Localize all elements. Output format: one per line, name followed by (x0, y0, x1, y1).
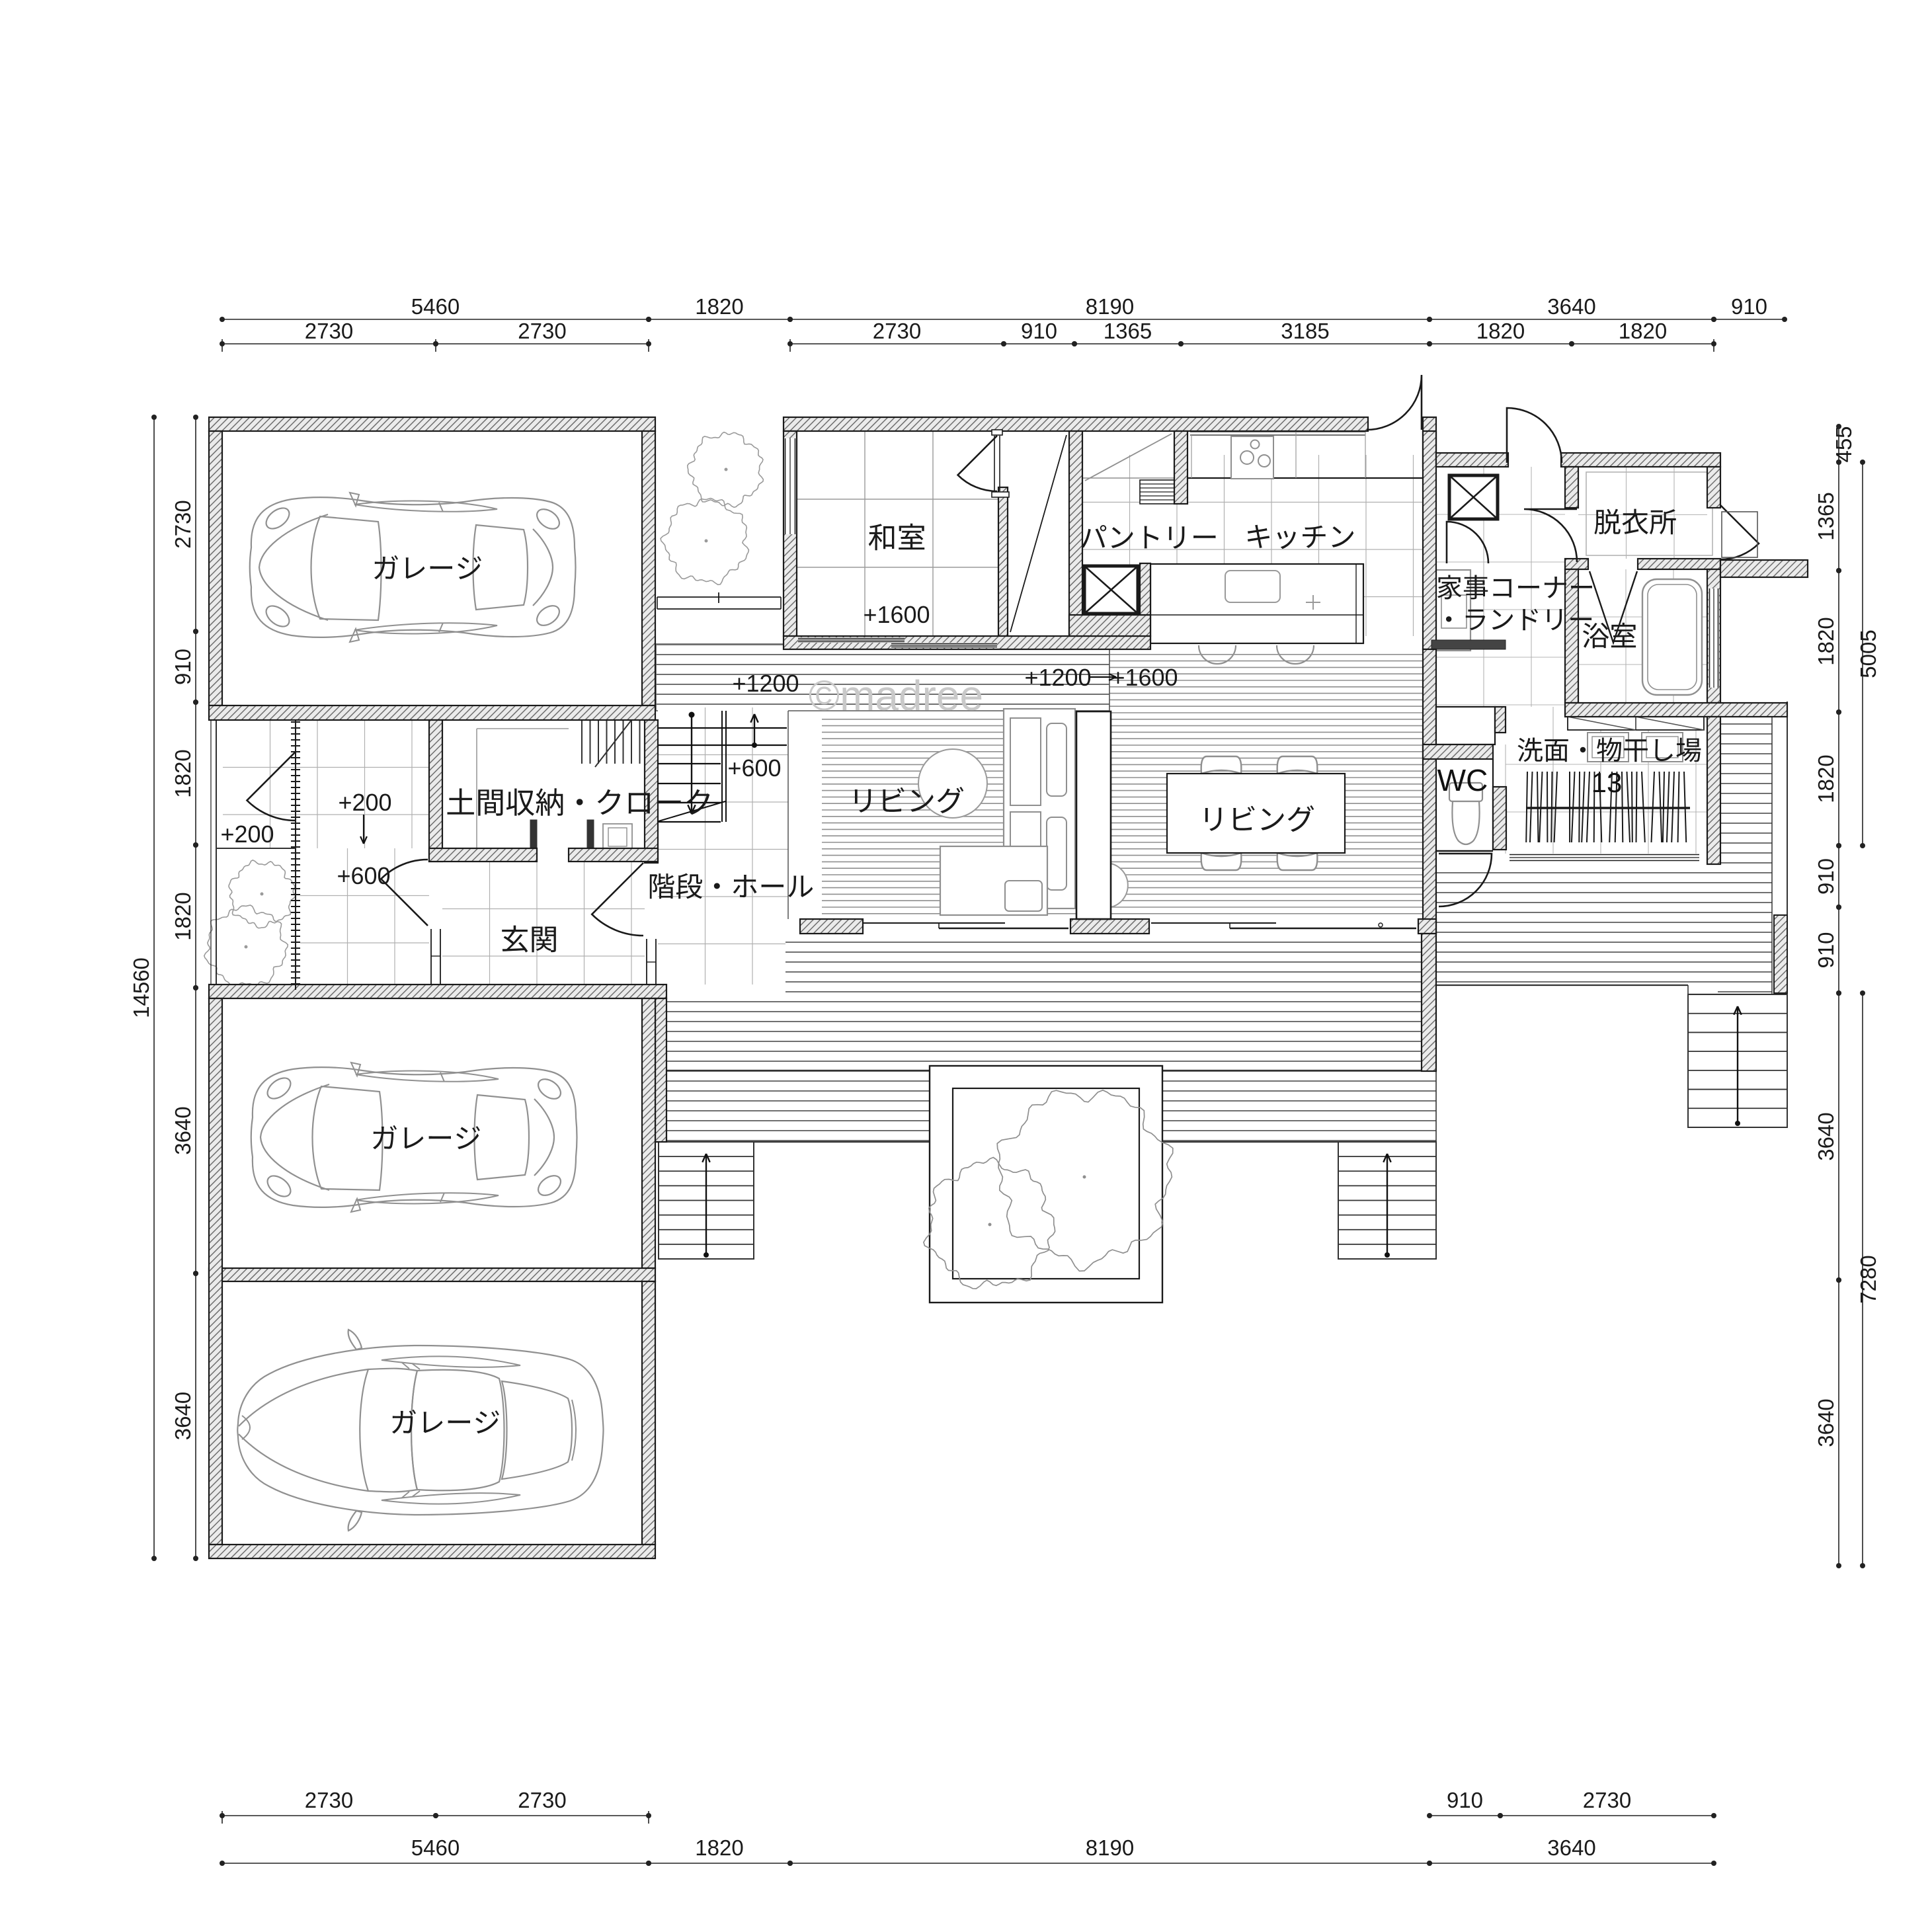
svg-text:1820: 1820 (1814, 617, 1838, 665)
svg-text:3640: 3640 (1547, 294, 1595, 319)
svg-text:3640: 3640 (171, 1392, 195, 1440)
svg-text:1820: 1820 (171, 749, 195, 797)
svg-text:3640: 3640 (171, 1106, 195, 1154)
svg-text:8190: 8190 (1086, 294, 1134, 319)
svg-text:+1200: +1200 (732, 670, 799, 697)
svg-text:910: 910 (1814, 858, 1838, 895)
svg-text:1820: 1820 (695, 1835, 743, 1860)
svg-text:©madree: ©madree (809, 672, 983, 719)
svg-text:+200: +200 (220, 821, 274, 848)
svg-text:3640: 3640 (1814, 1398, 1838, 1447)
svg-text:1820: 1820 (171, 892, 195, 940)
svg-text:+1600: +1600 (1111, 664, 1178, 691)
svg-text:910: 910 (1021, 319, 1057, 343)
svg-text:1820: 1820 (1619, 319, 1667, 343)
svg-text:910: 910 (171, 649, 195, 685)
svg-text:2730: 2730 (873, 319, 921, 343)
svg-text:1820: 1820 (1476, 319, 1525, 343)
svg-text:1820: 1820 (1814, 754, 1838, 803)
svg-text:5460: 5460 (411, 1835, 460, 1860)
svg-text:14560: 14560 (129, 957, 153, 1018)
svg-text:910: 910 (1814, 932, 1838, 968)
svg-text:+600: +600 (337, 862, 390, 889)
svg-text:3185: 3185 (1281, 319, 1329, 343)
svg-text:2730: 2730 (518, 1788, 566, 1812)
svg-text:2730: 2730 (1583, 1788, 1631, 1812)
svg-text:+200: +200 (338, 789, 391, 816)
svg-text:+1200: +1200 (1024, 664, 1091, 691)
svg-text:2730: 2730 (305, 319, 353, 343)
svg-text:3640: 3640 (1547, 1835, 1595, 1860)
svg-text:13: 13 (1591, 767, 1623, 798)
svg-text:1365: 1365 (1814, 492, 1838, 540)
svg-text:1365: 1365 (1104, 319, 1152, 343)
svg-text:5460: 5460 (411, 294, 460, 319)
svg-text:910: 910 (1731, 294, 1767, 319)
svg-text:2730: 2730 (171, 500, 195, 548)
svg-text:+600: +600 (727, 754, 781, 782)
svg-text:+1600: +1600 (863, 601, 930, 628)
svg-text:5005: 5005 (1856, 629, 1880, 678)
svg-text:455: 455 (1831, 426, 1856, 462)
svg-text:910: 910 (1447, 1788, 1483, 1812)
svg-text:2730: 2730 (518, 319, 566, 343)
svg-text:7280: 7280 (1856, 1255, 1880, 1303)
svg-text:8190: 8190 (1086, 1835, 1134, 1860)
svg-text:WC: WC (1437, 763, 1488, 797)
svg-text:2730: 2730 (305, 1788, 353, 1812)
svg-text:1820: 1820 (695, 294, 743, 319)
svg-text:3640: 3640 (1814, 1112, 1838, 1160)
